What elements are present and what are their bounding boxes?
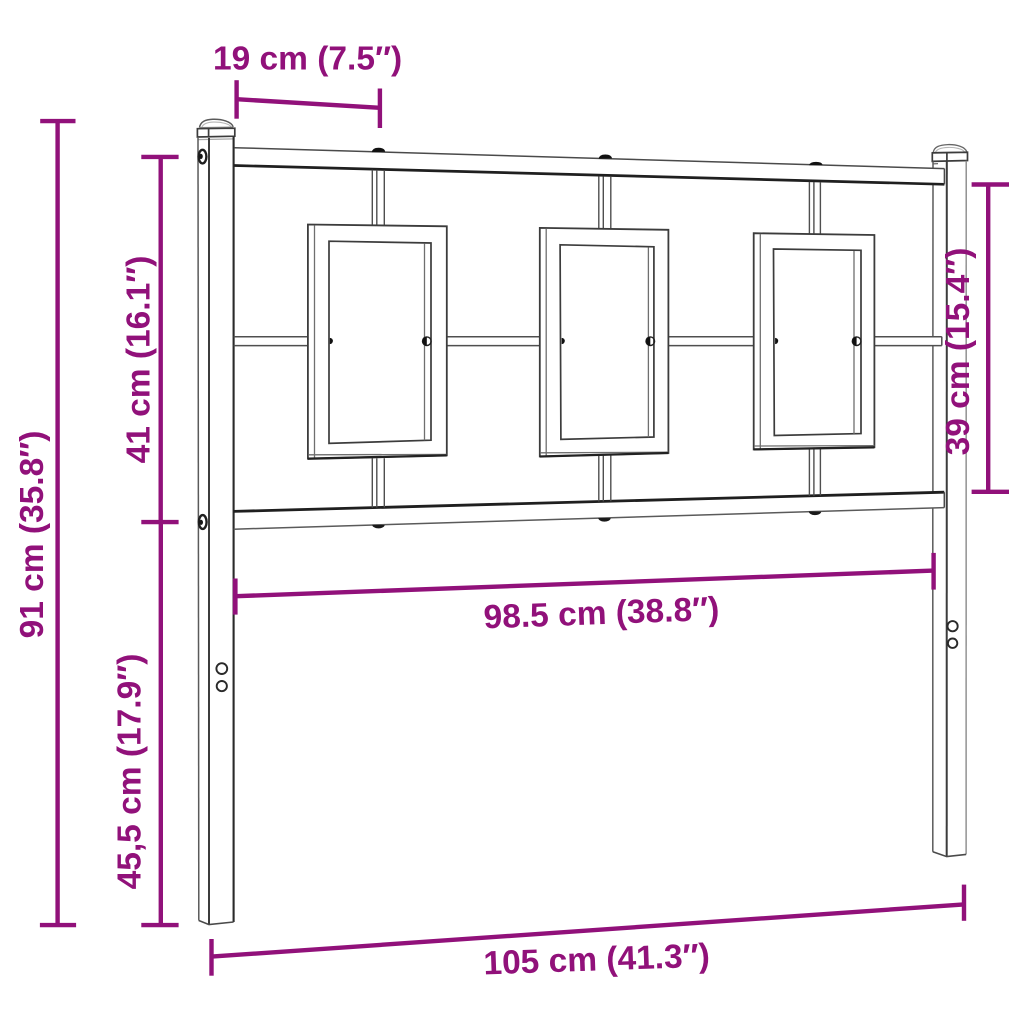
svg-text:41 cm (16.1″): 41 cm (16.1″) bbox=[121, 256, 158, 464]
svg-text:19 cm (7.5″): 19 cm (7.5″) bbox=[213, 40, 402, 77]
svg-text:39 cm (15.4″): 39 cm (15.4″) bbox=[940, 248, 977, 456]
svg-text:91 cm (35.8″): 91 cm (35.8″) bbox=[14, 431, 51, 639]
svg-text:105 cm (41.3″): 105 cm (41.3″) bbox=[483, 938, 711, 983]
svg-text:45,5 cm (17.9″): 45,5 cm (17.9″) bbox=[112, 654, 149, 890]
